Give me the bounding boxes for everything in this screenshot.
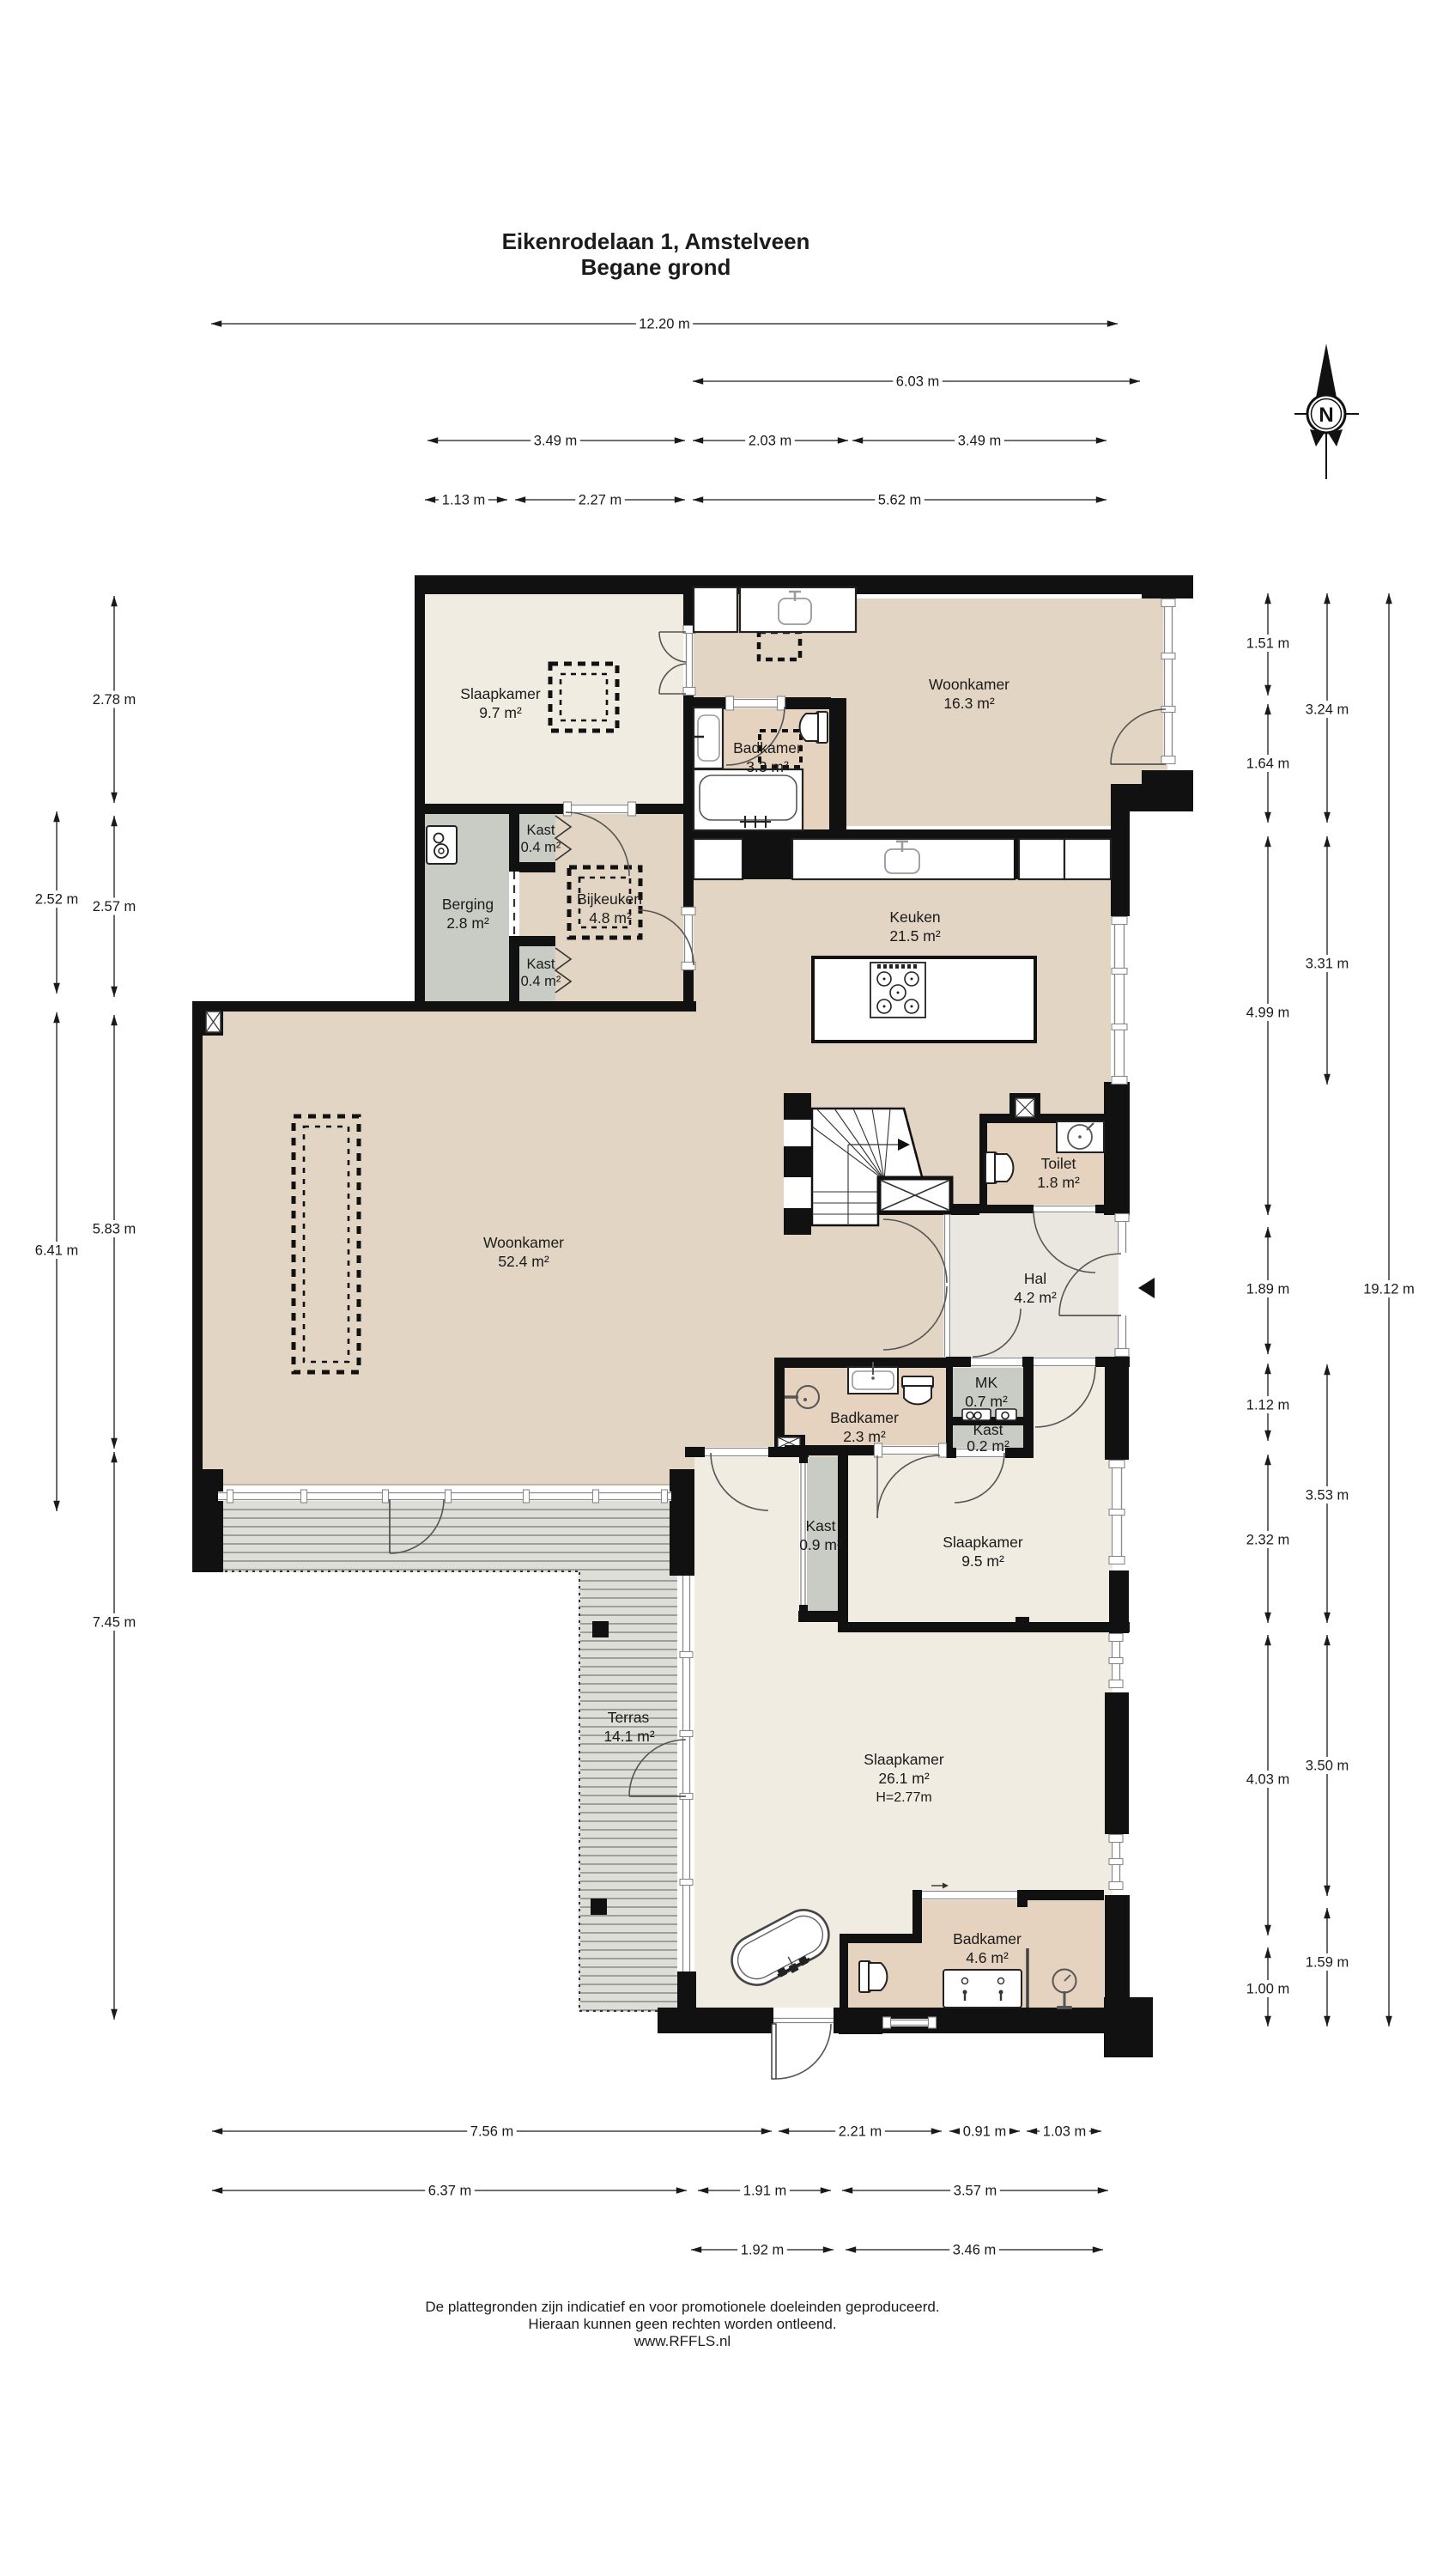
svg-text:9.7 m²: 9.7 m² bbox=[479, 704, 522, 721]
svg-text:2.8 m²: 2.8 m² bbox=[446, 914, 489, 932]
svg-text:1.64 m: 1.64 m bbox=[1246, 756, 1289, 772]
svg-text:16.3 m²: 16.3 m² bbox=[943, 695, 994, 712]
svg-text:Slaapkamer: Slaapkamer bbox=[943, 1534, 1023, 1551]
svg-text:7.45 m: 7.45 m bbox=[93, 1615, 136, 1631]
svg-text:1.51 m: 1.51 m bbox=[1246, 636, 1289, 652]
svg-text:Toilet: Toilet bbox=[1041, 1155, 1076, 1172]
svg-text:Bijkeuken: Bijkeuken bbox=[577, 890, 642, 908]
svg-text:Woonkamer: Woonkamer bbox=[929, 676, 1009, 693]
svg-text:2.57 m: 2.57 m bbox=[93, 899, 136, 914]
svg-text:26.1 m²: 26.1 m² bbox=[878, 1770, 929, 1787]
svg-text:3.49 m: 3.49 m bbox=[534, 434, 577, 449]
svg-text:6.37 m: 6.37 m bbox=[428, 2184, 471, 2199]
svg-text:1.13 m: 1.13 m bbox=[442, 493, 485, 508]
svg-text:2.21 m: 2.21 m bbox=[839, 2124, 882, 2140]
svg-text:5.83 m: 5.83 m bbox=[93, 1222, 136, 1237]
svg-text:3.31 m: 3.31 m bbox=[1306, 957, 1349, 972]
svg-text:4.03 m: 4.03 m bbox=[1246, 1772, 1289, 1788]
svg-text:Keuken: Keuken bbox=[889, 908, 940, 926]
svg-text:3.50 m: 3.50 m bbox=[1306, 1759, 1349, 1774]
svg-text:21.5 m²: 21.5 m² bbox=[889, 927, 940, 945]
svg-text:Hieraan kunnen geen rechten wo: Hieraan kunnen geen rechten worden ontle… bbox=[528, 2316, 836, 2332]
svg-text:1.89 m: 1.89 m bbox=[1246, 1282, 1289, 1297]
svg-text:Badkamer: Badkamer bbox=[953, 1930, 1022, 1947]
svg-text:1.59 m: 1.59 m bbox=[1306, 1955, 1349, 1971]
svg-text:Kast: Kast bbox=[973, 1421, 1003, 1438]
svg-text:9.5 m²: 9.5 m² bbox=[961, 1552, 1004, 1570]
svg-text:7.56 m: 7.56 m bbox=[470, 2124, 513, 2140]
svg-text:2.03 m: 2.03 m bbox=[749, 434, 791, 449]
svg-text:3.49 m: 3.49 m bbox=[958, 434, 1001, 449]
svg-text:Slaapkamer: Slaapkamer bbox=[460, 685, 541, 702]
svg-text:0.91 m: 0.91 m bbox=[963, 2124, 1006, 2140]
svg-text:2.52 m: 2.52 m bbox=[35, 892, 78, 908]
svg-text:1.92 m: 1.92 m bbox=[741, 2243, 784, 2258]
svg-text:1.8 m²: 1.8 m² bbox=[1037, 1174, 1080, 1191]
svg-text:14.1 m²: 14.1 m² bbox=[603, 1728, 654, 1745]
svg-text:4.2 m²: 4.2 m² bbox=[1014, 1289, 1057, 1306]
svg-text:Begane grond: Begane grond bbox=[581, 254, 731, 280]
svg-text:3.3 m²: 3.3 m² bbox=[746, 758, 789, 775]
svg-text:N: N bbox=[1319, 404, 1333, 427]
svg-text:3.46 m: 3.46 m bbox=[953, 2243, 996, 2258]
svg-text:0.9 m²: 0.9 m² bbox=[799, 1536, 842, 1553]
svg-text:52.4 m²: 52.4 m² bbox=[498, 1253, 549, 1270]
svg-text:0.2 m²: 0.2 m² bbox=[967, 1437, 1009, 1455]
svg-text:3.24 m: 3.24 m bbox=[1306, 702, 1349, 718]
svg-text:1.12 m: 1.12 m bbox=[1246, 1398, 1289, 1413]
svg-text:3.57 m: 3.57 m bbox=[954, 2184, 997, 2199]
svg-text:Terras: Terras bbox=[608, 1709, 650, 1726]
svg-text:2.27 m: 2.27 m bbox=[579, 493, 621, 508]
svg-text:2.32 m: 2.32 m bbox=[1246, 1533, 1289, 1548]
svg-text:Woonkamer: Woonkamer bbox=[483, 1234, 564, 1251]
svg-text:Kast: Kast bbox=[526, 823, 555, 838]
svg-text:0.4 m²: 0.4 m² bbox=[521, 840, 561, 855]
svg-text:De plattegronden zijn indicati: De plattegronden zijn indicatief en voor… bbox=[425, 2299, 939, 2315]
svg-text:1.91 m: 1.91 m bbox=[743, 2184, 786, 2199]
svg-text:H=2.77m: H=2.77m bbox=[876, 1790, 931, 1805]
svg-text:4.99 m: 4.99 m bbox=[1246, 1005, 1289, 1021]
svg-text:4.8 m²: 4.8 m² bbox=[589, 909, 632, 927]
svg-text:www.RFFLS.nl: www.RFFLS.nl bbox=[634, 2333, 731, 2349]
svg-text:Badkamer: Badkamer bbox=[733, 739, 802, 756]
svg-text:3.53 m: 3.53 m bbox=[1306, 1488, 1349, 1504]
svg-text:Kast: Kast bbox=[526, 957, 555, 972]
svg-text:5.62 m: 5.62 m bbox=[878, 493, 921, 508]
svg-text:6.03 m: 6.03 m bbox=[896, 374, 939, 390]
svg-text:1.00 m: 1.00 m bbox=[1246, 1982, 1289, 1997]
svg-text:Badkamer: Badkamer bbox=[830, 1409, 899, 1426]
svg-text:2.3 m²: 2.3 m² bbox=[843, 1428, 886, 1445]
svg-text:0.4 m²: 0.4 m² bbox=[521, 974, 561, 989]
svg-text:Slaapkamer: Slaapkamer bbox=[864, 1751, 944, 1768]
svg-text:Eikenrodelaan 1, Amstelveen: Eikenrodelaan 1, Amstelveen bbox=[502, 228, 810, 254]
svg-text:2.78 m: 2.78 m bbox=[93, 692, 136, 708]
svg-text:Berging: Berging bbox=[442, 896, 494, 913]
svg-text:0.7 m²: 0.7 m² bbox=[965, 1393, 1008, 1410]
svg-text:MK: MK bbox=[975, 1374, 998, 1391]
svg-text:Kast: Kast bbox=[805, 1517, 835, 1534]
svg-text:19.12 m: 19.12 m bbox=[1363, 1282, 1415, 1297]
svg-text:4.6 m²: 4.6 m² bbox=[966, 1949, 1009, 1966]
svg-text:1.03 m: 1.03 m bbox=[1043, 2124, 1086, 2140]
svg-text:Hal: Hal bbox=[1024, 1270, 1046, 1287]
svg-text:12.20 m: 12.20 m bbox=[639, 317, 690, 332]
svg-text:6.41 m: 6.41 m bbox=[35, 1243, 78, 1259]
